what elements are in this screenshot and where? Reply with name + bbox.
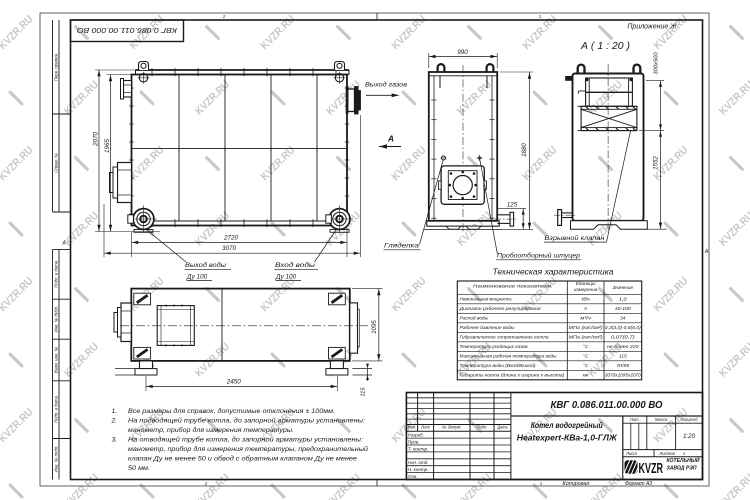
svg-text:Т. контр.: Т. контр.	[408, 446, 429, 451]
svg-text:Рабочее давление воды: Рабочее давление воды	[460, 325, 516, 330]
svg-text:34: 34	[620, 316, 626, 321]
svg-text:мм: мм	[583, 373, 589, 378]
svg-text:2: 2	[204, 481, 208, 486]
svg-text:Котел водогрейный: Котел водогрейный	[531, 421, 603, 430]
svg-text:Разраб.: Разраб.	[408, 433, 424, 438]
svg-text:1: 1	[683, 451, 685, 456]
svg-text:Ду 100: Ду 100	[186, 273, 208, 280]
svg-text:1095: 1095	[371, 320, 378, 334]
svg-text:Все размеры для справок, допус: Все размеры для справок, допустимые откл…	[128, 407, 335, 415]
svg-text:манометр, прибор для измерения: манометр, прибор для измерения температу…	[128, 426, 294, 434]
svg-text:Техническая характеристика: Техническая характеристика	[493, 268, 614, 277]
svg-text:Единицы: Единицы	[576, 281, 596, 286]
svg-text:990: 990	[457, 49, 468, 56]
svg-text:2.: 2.	[111, 418, 118, 425]
svg-text:1:20: 1:20	[683, 433, 696, 440]
svg-text:Приложение Ж: Приложение Ж	[627, 24, 677, 31]
svg-text:А ( 1 : 20 ): А ( 1 : 20 )	[580, 40, 630, 52]
svg-text:Изм.: Изм.	[408, 425, 417, 430]
svg-text:Температура уходящих газов: Температура уходящих газов	[460, 344, 529, 349]
svg-text:ЗАВОД РЭП: ЗАВОД РЭП	[667, 466, 697, 472]
svg-text:1880: 1880	[521, 143, 528, 157]
svg-text:Дата: Дата	[497, 425, 508, 430]
svg-text:50 мм.: 50 мм.	[128, 465, 150, 472]
svg-text:манометр, прибор для измерения: манометр, прибор для измерения температу…	[128, 445, 368, 453]
svg-text:МПа (кгс/см²): МПа (кгс/см²)	[569, 325, 603, 330]
svg-text:2070: 2070	[93, 132, 100, 148]
svg-text:Перв. примен.: Перв. примен.	[54, 53, 59, 82]
svg-text:МВт: МВт	[582, 297, 590, 302]
svg-text:1552: 1552	[652, 156, 659, 170]
svg-text:°С: °С	[583, 363, 589, 368]
svg-text:°С: °С	[583, 344, 589, 349]
svg-text:Вход воды: Вход воды	[275, 261, 315, 269]
svg-text:Пробоотборный штуцер: Пробоотборный штуцер	[497, 252, 580, 260]
svg-text:КВГ 0.086.011.00.000 ВО: КВГ 0.086.011.00.000 ВО	[77, 26, 177, 35]
svg-text:Подп. и дата: Подп. и дата	[54, 260, 59, 288]
svg-text:Справ. №: Справ. №	[54, 153, 59, 173]
svg-text:2720: 2720	[223, 234, 239, 241]
svg-text:KVZR: KVZR	[639, 460, 664, 477]
svg-text:Подп. и дата: Подп. и дата	[54, 396, 59, 424]
svg-text:Формат А3: Формат А3	[625, 481, 652, 487]
svg-text:Габариты котла (длина х ширина: Габариты котла (длина х ширина х высота)	[460, 373, 565, 378]
svg-text:МПа (кгс/см²): МПа (кгс/см²)	[569, 335, 603, 340]
svg-text:Выход воды: Выход воды	[185, 261, 226, 269]
svg-text:Максимальная рабочая температу: Максимальная рабочая температура воды	[460, 354, 557, 359]
svg-text:клапан Ду не менее 50 и обвод: клапан Ду не менее 50 и обвод с обратным…	[128, 455, 357, 463]
svg-text:°С: °С	[583, 354, 589, 359]
svg-text:Листов: Листов	[658, 451, 675, 456]
svg-text:Наименование показателя: Наименование показателя	[473, 284, 552, 289]
svg-text:3070х1095х2070: 3070х1095х2070	[605, 373, 641, 378]
svg-text:Инв. № подл.: Инв. № подл.	[54, 446, 59, 473]
svg-text:3070: 3070	[222, 245, 237, 252]
svg-text:КОТЕЛЬНЫЙ: КОТЕЛЬНЫЙ	[667, 456, 700, 464]
svg-text:Диапазон рабочего регулировани: Диапазон рабочего регулирования	[458, 306, 541, 311]
svg-text:Гидравлическое сопротивление к: Гидравлическое сопротивление котла	[460, 335, 549, 340]
svg-text:Гляделка: Гляделка	[384, 242, 419, 250]
svg-text:Взрывной клапан: Взрывной клапан	[545, 234, 605, 242]
svg-text:0,3(3,0)-0,6(6,0): 0,3(3,0)-0,6(6,0)	[605, 325, 641, 330]
svg-text:%: %	[584, 306, 587, 311]
svg-text:300х500: 300х500	[654, 52, 660, 75]
svg-text:Нач. отд.: Нач. отд.	[408, 460, 429, 465]
svg-text:Масштаб: Масштаб	[681, 417, 699, 422]
svg-text:Heatexpert-КВа-1,0-ГЛЖ: Heatexpert-КВа-1,0-ГЛЖ	[517, 434, 617, 443]
svg-text:Лист: Лист	[420, 425, 430, 430]
svg-text:0,07(0,7): 0,07(0,7)	[611, 335, 635, 340]
svg-text:Инв. № дубл.: Инв. № дубл.	[54, 306, 59, 332]
svg-text:м³/ч: м³/ч	[580, 316, 591, 321]
svg-text:115: 115	[360, 387, 366, 397]
svg-text:1,0: 1,0	[619, 297, 627, 302]
svg-text:125: 125	[507, 202, 518, 209]
svg-text:Утв.: Утв.	[408, 474, 417, 479]
svg-text:2: 2	[222, 14, 226, 19]
svg-text:40-100: 40-100	[615, 306, 631, 311]
svg-text:Копировал: Копировал	[563, 481, 590, 487]
svg-text:Значение: Значение	[613, 285, 634, 290]
svg-text:Лист: Лист	[625, 451, 637, 456]
svg-text:не более 220: не более 220	[607, 344, 639, 349]
svg-text:Ду 100: Ду 100	[275, 273, 297, 280]
svg-text:КВГ 0.086.011.00.000 ВО: КВГ 0.086.011.00.000 ВО	[551, 399, 663, 411]
svg-text:70/95: 70/95	[616, 363, 630, 368]
svg-text:Расход воды: Расход воды	[460, 316, 489, 321]
svg-text:Лит.: Лит.	[629, 417, 640, 422]
svg-text:А: А	[387, 134, 394, 144]
svg-text:Номинальная мощность: Номинальная мощность	[460, 297, 513, 302]
svg-text:измерения: измерения	[574, 287, 598, 292]
svg-text:На подводящей трубе котла, до: На подводящей трубе котла, до запорной а…	[128, 417, 365, 425]
svg-text:Взам. инв. №: Взам. инв. №	[54, 346, 59, 373]
svg-text:1965: 1965	[104, 139, 111, 154]
svg-text:1.: 1.	[112, 408, 118, 415]
svg-text:Масса: Масса	[655, 417, 668, 422]
svg-text:3.: 3.	[112, 437, 118, 444]
svg-text:115: 115	[619, 354, 627, 359]
svg-text:Подп.: Подп.	[477, 425, 488, 430]
svg-text:Температура воды (Вход/Выход): Температура воды (Вход/Выход)	[460, 363, 536, 368]
svg-text:На отводящей трубе котла, до з: На отводящей трубе котла, до запорной ар…	[128, 436, 363, 444]
svg-text:Пров.: Пров.	[408, 439, 420, 444]
svg-text:№ докум.: № докум.	[442, 425, 462, 430]
svg-text:А: А	[61, 241, 66, 247]
svg-text:А: А	[704, 249, 709, 255]
svg-text:Выход газов: Выход газов	[365, 81, 407, 89]
svg-text:Н. контр.: Н. контр.	[408, 467, 429, 472]
svg-text:2450: 2450	[226, 378, 242, 385]
